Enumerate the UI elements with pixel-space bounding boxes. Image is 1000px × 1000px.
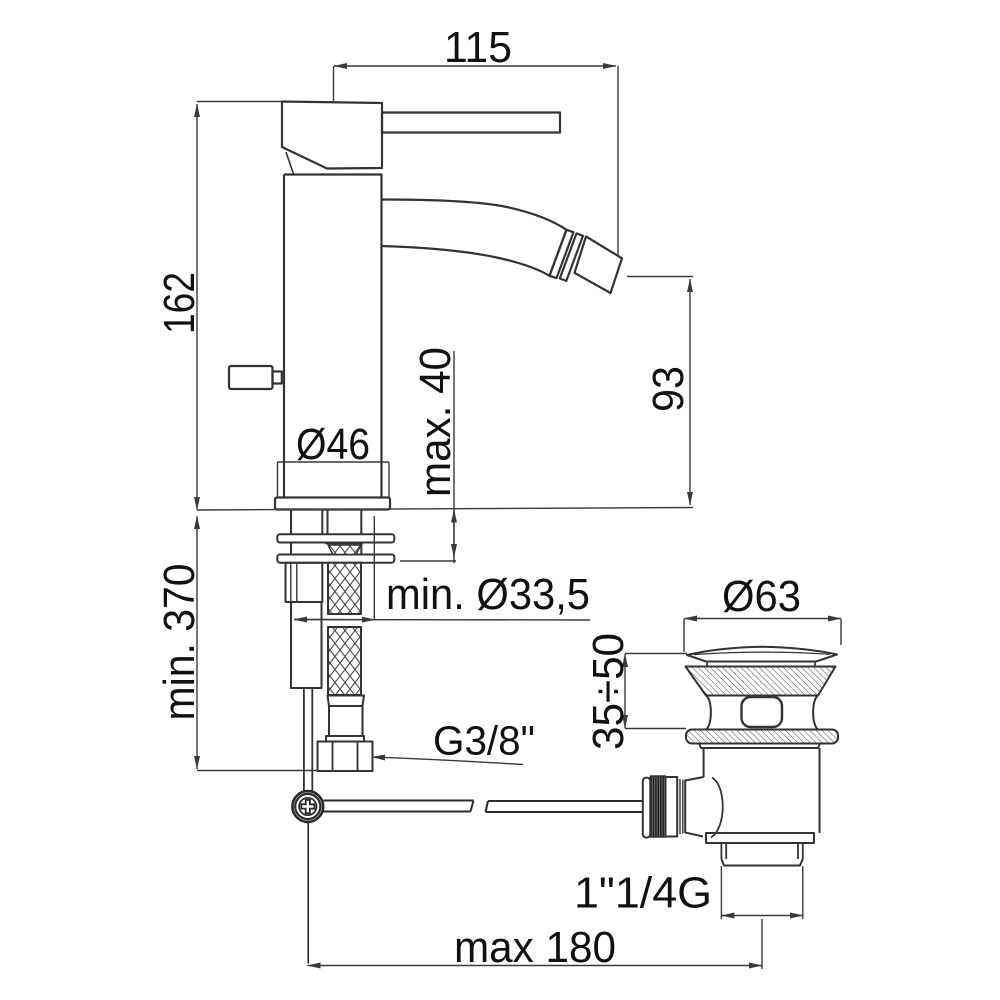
svg-text:35÷50: 35÷50 xyxy=(584,633,633,750)
svg-text:max. 40: max. 40 xyxy=(411,347,460,497)
svg-text:115: 115 xyxy=(444,23,512,72)
svg-text:1"1/4G: 1"1/4G xyxy=(574,869,712,918)
svg-text:93: 93 xyxy=(644,366,693,412)
svg-text:min. 370: min. 370 xyxy=(155,564,204,721)
svg-text:max 180: max 180 xyxy=(454,923,616,972)
svg-text:Ø46: Ø46 xyxy=(296,420,370,469)
svg-text:min. Ø33,5: min. Ø33,5 xyxy=(386,570,590,619)
svg-text:G3/8": G3/8" xyxy=(433,718,535,764)
svg-text:Ø63: Ø63 xyxy=(722,572,801,621)
svg-text:162: 162 xyxy=(155,272,204,334)
